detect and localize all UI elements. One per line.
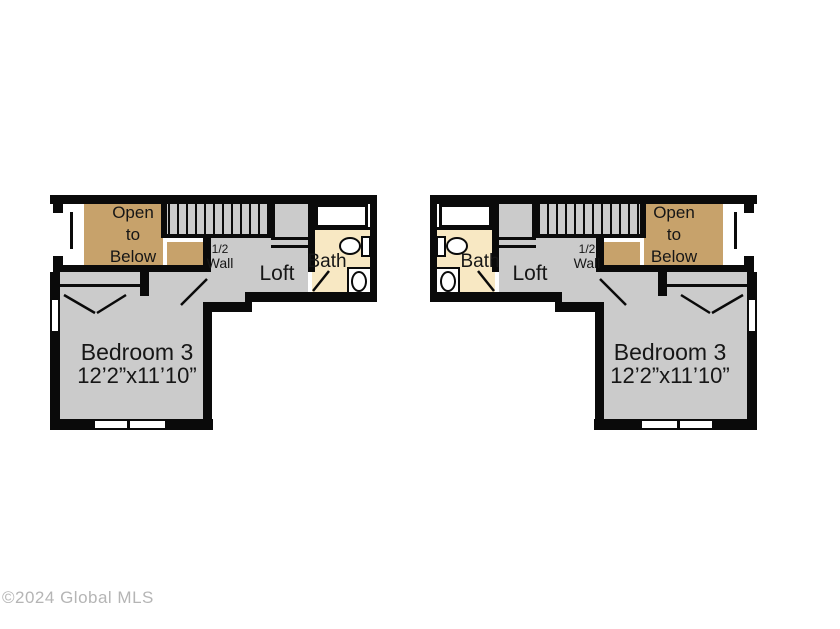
half-wall-label: 1/2 Wall (567, 243, 607, 271)
bedroom-dimensions-label: 12’2”x11’10” (54, 364, 220, 388)
open-to-below-line3: Below (624, 246, 724, 268)
bath-label: Bath (298, 252, 356, 273)
open-to-below-line1: Open (83, 202, 183, 224)
open-to-below-label: Open to Below (83, 202, 183, 268)
floorplan-image: Open to Below 1/2 Wall Loft Bath Bedroom… (0, 0, 840, 629)
bath-label: Bath (451, 252, 509, 273)
bedroom-dimensions-label: 12’2”x11’10” (587, 364, 753, 388)
bedroom-label: Bedroom 3 (590, 340, 750, 365)
half-wall-line2: Wall (567, 256, 607, 271)
closet-door-line (712, 295, 743, 313)
bedroom-door-swing (181, 279, 207, 305)
closet-door-line (681, 295, 710, 313)
bath-door-swing (478, 271, 494, 291)
bath-door-swing (313, 271, 329, 291)
floor-plan-mirrored: Open to Below 1/2 Wall Loft Bath Bedroom… (429, 192, 757, 438)
bedroom-label: Bedroom 3 (57, 340, 217, 365)
open-to-below-line2: to (624, 224, 724, 246)
closet-door-line (97, 295, 126, 313)
floor-plan: Open to Below 1/2 Wall Loft Bath Bedroom… (50, 192, 378, 438)
closet-door-line (64, 295, 95, 313)
open-to-below-label: Open to Below (624, 202, 724, 268)
half-wall-line2: Wall (200, 256, 240, 271)
bedroom-door-swing (600, 279, 626, 305)
open-to-below-line3: Below (83, 246, 183, 268)
watermark-text: ©2024 Global MLS (2, 588, 154, 608)
half-wall-label: 1/2 Wall (200, 243, 240, 271)
open-to-below-line1: Open (624, 202, 724, 224)
open-to-below-line2: to (83, 224, 183, 246)
